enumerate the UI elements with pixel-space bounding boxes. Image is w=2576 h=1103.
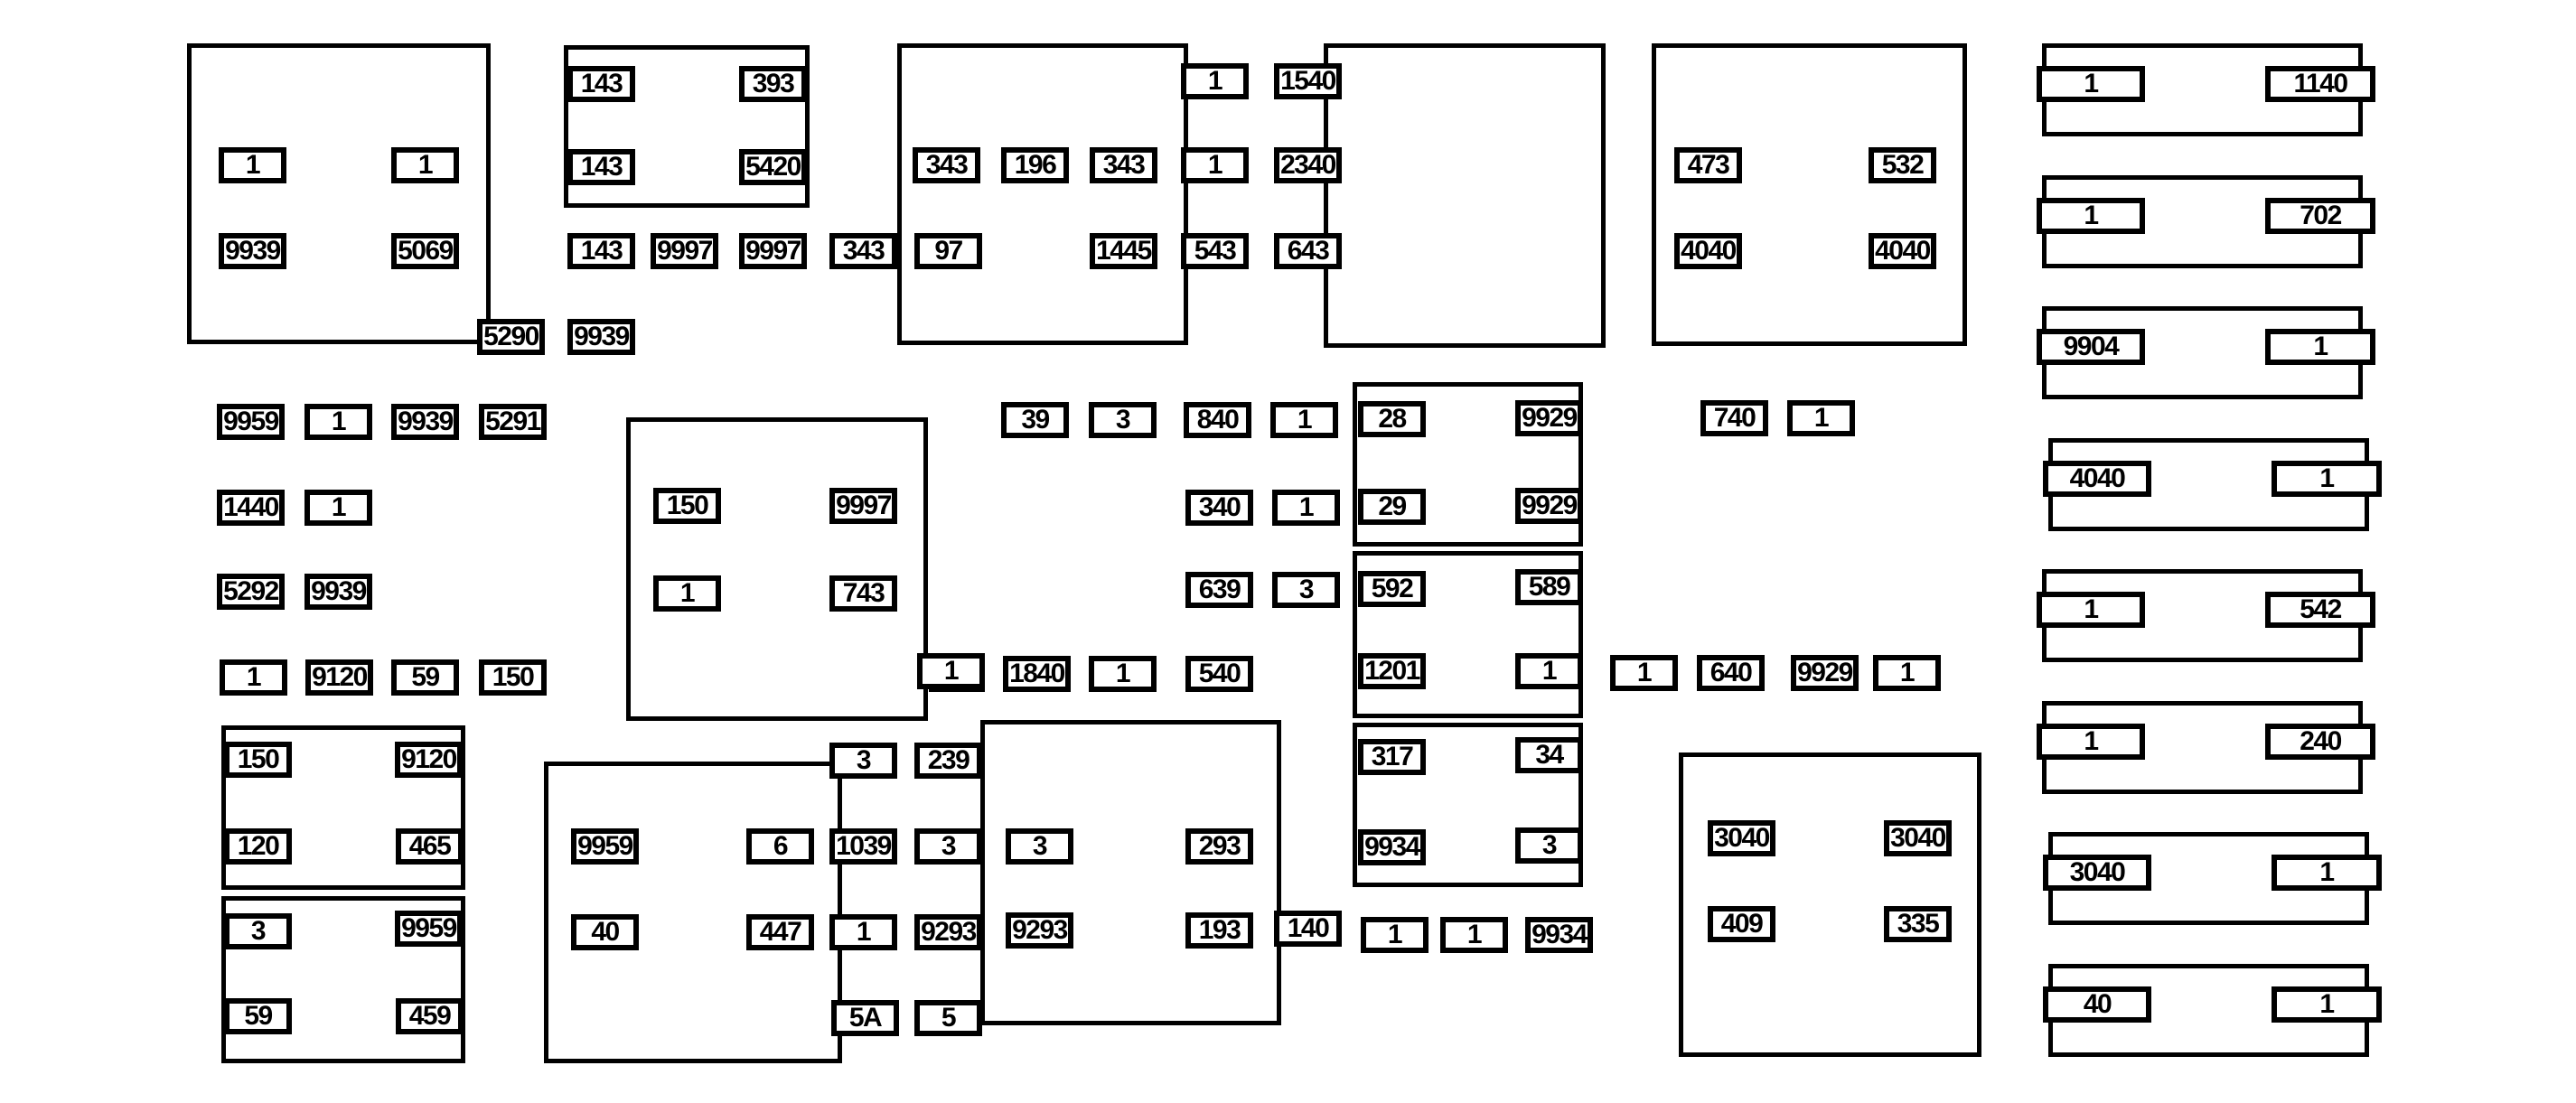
pin-label: 150 — [479, 659, 547, 696]
pin-label: 343 — [1090, 147, 1157, 183]
pin-label: 1 — [1181, 63, 1249, 99]
pin-label: 447 — [746, 914, 814, 950]
pin-label: 9997 — [739, 233, 807, 269]
pin-label: 3040 — [2043, 855, 2151, 891]
pin-label: 5069 — [391, 233, 459, 269]
pin-label: 1 — [2037, 592, 2145, 628]
pin-label: 589 — [1515, 569, 1583, 605]
pin-label: 1 — [2037, 66, 2145, 102]
wiring-diagram-canvas: 1199395069529099391433931435420143999799… — [0, 0, 2576, 1103]
pin-label: 150 — [653, 488, 721, 524]
pin-label: 1 — [2037, 724, 2145, 760]
pin-label: 239 — [914, 743, 982, 779]
pin-label: 4040 — [2043, 461, 2151, 497]
pin-label: 4040 — [1674, 233, 1742, 269]
pin-label: 29 — [1358, 489, 1426, 525]
pin-label: 59 — [224, 998, 292, 1034]
pin-label: 335 — [1884, 906, 1952, 942]
pin-label: 9939 — [391, 404, 459, 440]
pin-label: 9929 — [1791, 655, 1859, 691]
pin-label: 1 — [1515, 653, 1583, 689]
pin-label: 150 — [224, 742, 292, 778]
pin-label: 459 — [396, 998, 464, 1034]
pin-label: 196 — [1001, 147, 1069, 183]
pin-label: 1 — [2037, 198, 2145, 234]
pin-label: 1 — [829, 914, 897, 950]
pin-label: 3 — [1089, 402, 1157, 438]
pin-label: 1 — [2272, 986, 2382, 1023]
pin-label: 120 — [224, 828, 292, 865]
component-box-14 — [1679, 752, 1981, 1057]
pin-label: 143 — [567, 149, 635, 185]
pin-label: 3 — [1515, 827, 1583, 864]
pin-label: 1 — [917, 653, 985, 689]
pin-label: 40 — [2043, 986, 2151, 1023]
component-box-9 — [626, 417, 928, 721]
pin-label: 1 — [653, 575, 721, 612]
pin-label: 3 — [829, 743, 897, 779]
pin-label: 1 — [1270, 402, 1338, 438]
pin-label: 1 — [1089, 656, 1157, 692]
pin-label: 5292 — [217, 574, 285, 610]
pin-label: 5291 — [479, 404, 547, 440]
pin-label: 1 — [1272, 490, 1340, 526]
pin-label: 59 — [391, 659, 459, 696]
pin-label: 409 — [1708, 906, 1775, 942]
pin-label: 2340 — [1274, 147, 1342, 183]
pin-label: 1445 — [1090, 233, 1157, 269]
pin-label: 1840 — [1003, 656, 1071, 692]
pin-label: 293 — [1185, 828, 1253, 865]
pin-label: 9959 — [571, 828, 639, 865]
pin-label: 5 — [914, 1000, 982, 1036]
pin-label: 702 — [2265, 198, 2375, 234]
pin-label: 1 — [1610, 655, 1678, 691]
pin-label: 6 — [746, 828, 814, 865]
pin-label: 3040 — [1884, 820, 1952, 856]
pin-label: 465 — [396, 828, 464, 865]
pin-label: 9934 — [1525, 917, 1593, 953]
pin-label: 5A — [831, 1000, 899, 1036]
pin-label: 1 — [2272, 461, 2382, 497]
pin-label: 542 — [2265, 592, 2375, 628]
pin-label: 3 — [1272, 572, 1340, 608]
pin-label: 97 — [914, 233, 982, 269]
pin-label: 743 — [829, 575, 897, 612]
pin-label: 317 — [1358, 739, 1426, 775]
pin-label: 1 — [1787, 400, 1855, 436]
pin-label: 1 — [1361, 917, 1429, 953]
pin-label: 740 — [1700, 400, 1768, 436]
pin-label: 9934 — [1358, 829, 1426, 865]
pin-label: 1 — [391, 147, 459, 183]
pin-label: 9997 — [651, 233, 718, 269]
pin-label: 1 — [2265, 329, 2375, 365]
pin-label: 343 — [829, 233, 897, 269]
pin-label: 840 — [1184, 402, 1251, 438]
pin-label: 28 — [1358, 401, 1426, 437]
component-box-8 — [544, 762, 842, 1063]
pin-label: 40 — [571, 914, 639, 950]
pin-label: 592 — [1358, 571, 1426, 607]
pin-label: 39 — [1001, 402, 1069, 438]
pin-label: 540 — [1185, 656, 1253, 692]
pin-label: 1 — [304, 490, 372, 526]
pin-label: 9120 — [395, 742, 463, 778]
pin-label: 9959 — [395, 911, 463, 947]
pin-label: 1201 — [1358, 653, 1426, 689]
pin-label: 640 — [1697, 655, 1765, 691]
pin-label: 1 — [1873, 655, 1941, 691]
pin-label: 639 — [1185, 572, 1253, 608]
pin-label: 5420 — [739, 149, 807, 185]
pin-label: 143 — [567, 233, 635, 269]
pin-label: 1 — [2272, 855, 2382, 891]
component-box-1 — [187, 43, 491, 344]
pin-label: 143 — [567, 66, 635, 102]
pin-label: 393 — [739, 66, 807, 102]
pin-label: 9929 — [1515, 400, 1583, 436]
pin-label: 340 — [1185, 490, 1253, 526]
pin-label: 3 — [1006, 828, 1073, 865]
pin-label: 4040 — [1869, 233, 1936, 269]
pin-label: 1 — [1440, 917, 1508, 953]
pin-label: 9997 — [829, 488, 897, 524]
pin-label: 9939 — [219, 233, 286, 269]
pin-label: 9293 — [914, 914, 982, 950]
pin-label: 5290 — [477, 319, 545, 355]
pin-label: 343 — [913, 147, 980, 183]
component-box-10 — [980, 720, 1281, 1025]
component-box-4 — [1324, 43, 1606, 348]
pin-label: 1440 — [217, 490, 285, 526]
pin-label: 1140 — [2265, 66, 2375, 102]
pin-label: 140 — [1274, 911, 1342, 947]
pin-label: 473 — [1674, 147, 1742, 183]
pin-label: 1540 — [1274, 63, 1342, 99]
pin-label: 9929 — [1515, 488, 1583, 524]
pin-label: 1039 — [829, 828, 897, 865]
pin-label: 3 — [224, 913, 292, 949]
pin-label: 34 — [1515, 737, 1583, 773]
component-box-3 — [897, 43, 1188, 345]
pin-label: 1 — [220, 659, 287, 696]
component-box-5 — [1652, 43, 1967, 346]
pin-label: 3040 — [1708, 820, 1775, 856]
pin-label: 9959 — [217, 404, 285, 440]
pin-label: 240 — [2265, 724, 2375, 760]
pin-label: 9939 — [304, 574, 372, 610]
pin-label: 9904 — [2037, 329, 2145, 365]
pin-label: 532 — [1869, 147, 1936, 183]
pin-label: 643 — [1274, 233, 1342, 269]
pin-label: 1 — [219, 147, 286, 183]
pin-label: 1 — [304, 404, 372, 440]
pin-label: 9120 — [305, 659, 373, 696]
pin-label: 1 — [1181, 147, 1249, 183]
pin-label: 543 — [1181, 233, 1249, 269]
pin-label: 9939 — [567, 319, 635, 355]
pin-label: 193 — [1185, 912, 1253, 949]
pin-label: 9293 — [1006, 912, 1073, 949]
pin-label: 3 — [914, 828, 982, 865]
